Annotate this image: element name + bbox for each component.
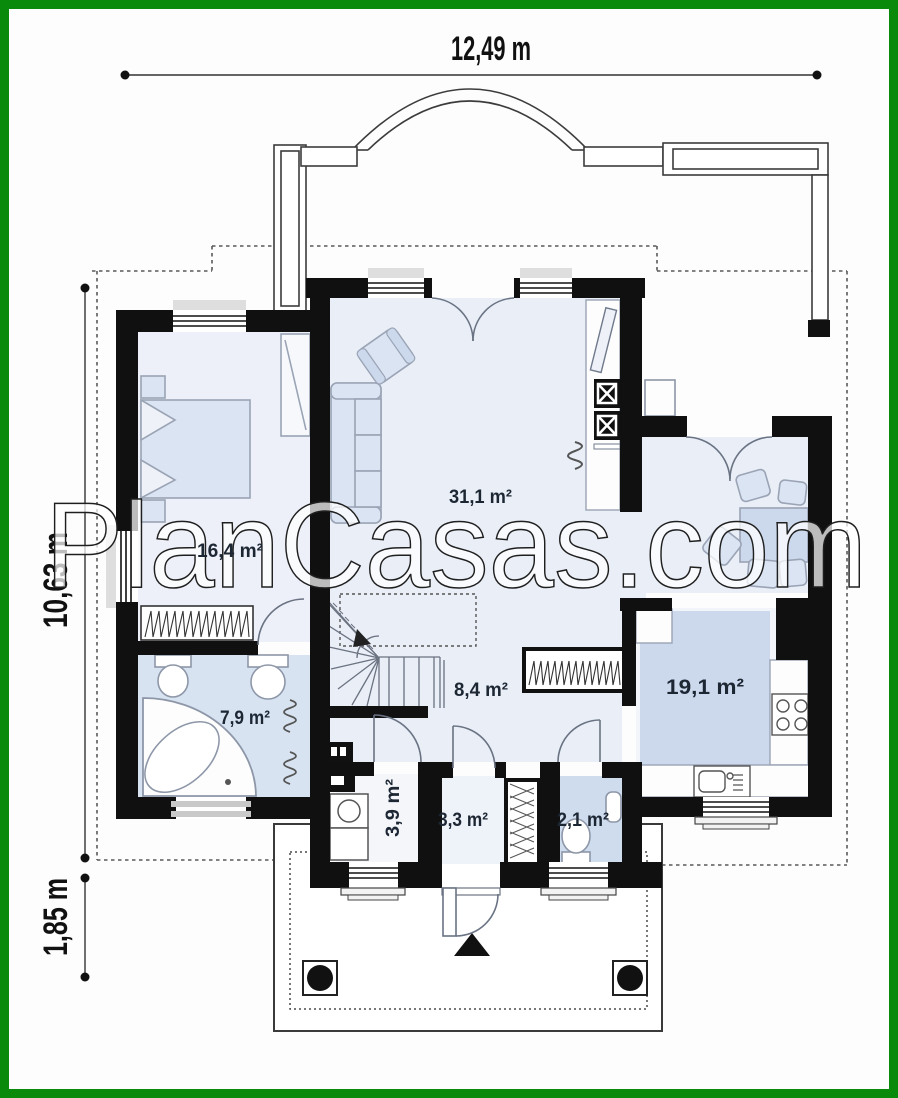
- svg-text:19,1 m²: 19,1 m²: [666, 675, 744, 699]
- svg-text:1,85 m: 1,85 m: [37, 878, 75, 956]
- svg-text:8,4 m²: 8,4 m²: [454, 679, 508, 701]
- svg-text:3,3 m²: 3,3 m²: [438, 809, 488, 831]
- svg-text:12,49 m: 12,49 m: [451, 30, 531, 68]
- svg-text:2,1 m²: 2,1 m²: [557, 809, 609, 831]
- svg-text:7,9 m²: 7,9 m²: [220, 707, 270, 729]
- svg-text:3,9 m²: 3,9 m²: [382, 778, 404, 837]
- svg-text:16,4 m²: 16,4 m²: [197, 540, 263, 562]
- svg-text:31,1 m²: 31,1 m²: [449, 486, 512, 508]
